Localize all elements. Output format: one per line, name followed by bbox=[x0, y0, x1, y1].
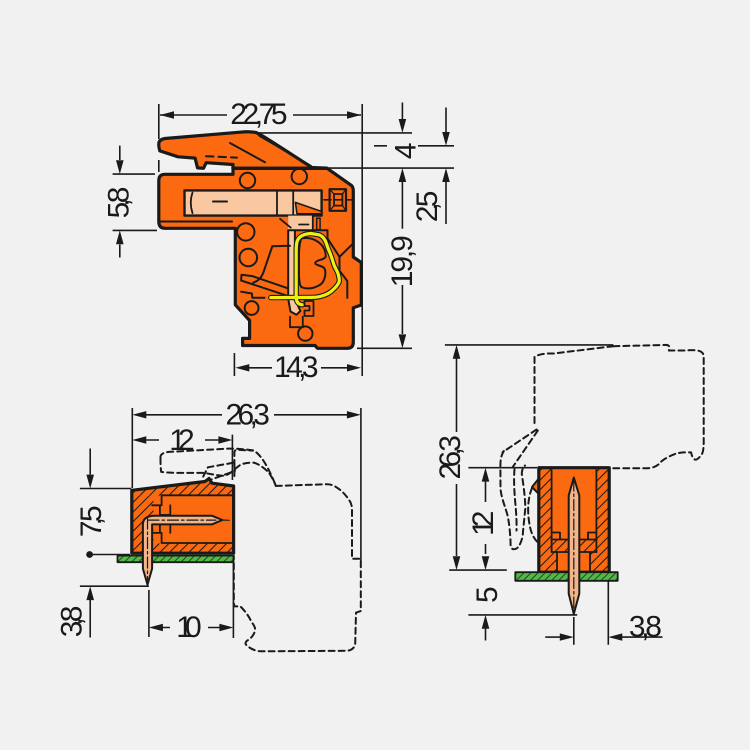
svg-text:3,8: 3,8 bbox=[55, 606, 88, 638]
svg-text:4: 4 bbox=[389, 142, 422, 159]
svg-text:5: 5 bbox=[471, 586, 504, 603]
svg-text:5,8: 5,8 bbox=[103, 186, 136, 218]
svg-text:26,3: 26,3 bbox=[434, 435, 467, 480]
svg-text:7,5: 7,5 bbox=[75, 505, 108, 537]
svg-text:10: 10 bbox=[176, 611, 201, 644]
svg-text:22,75: 22,75 bbox=[230, 98, 287, 131]
svg-text:14,3: 14,3 bbox=[274, 351, 319, 384]
svg-text:12: 12 bbox=[169, 424, 194, 457]
svg-text:12: 12 bbox=[467, 511, 500, 536]
svg-text:3,8: 3,8 bbox=[629, 611, 662, 644]
svg-text:2,5: 2,5 bbox=[411, 191, 444, 223]
svg-text:26,3: 26,3 bbox=[225, 398, 270, 431]
svg-text:19,9: 19,9 bbox=[386, 235, 419, 287]
